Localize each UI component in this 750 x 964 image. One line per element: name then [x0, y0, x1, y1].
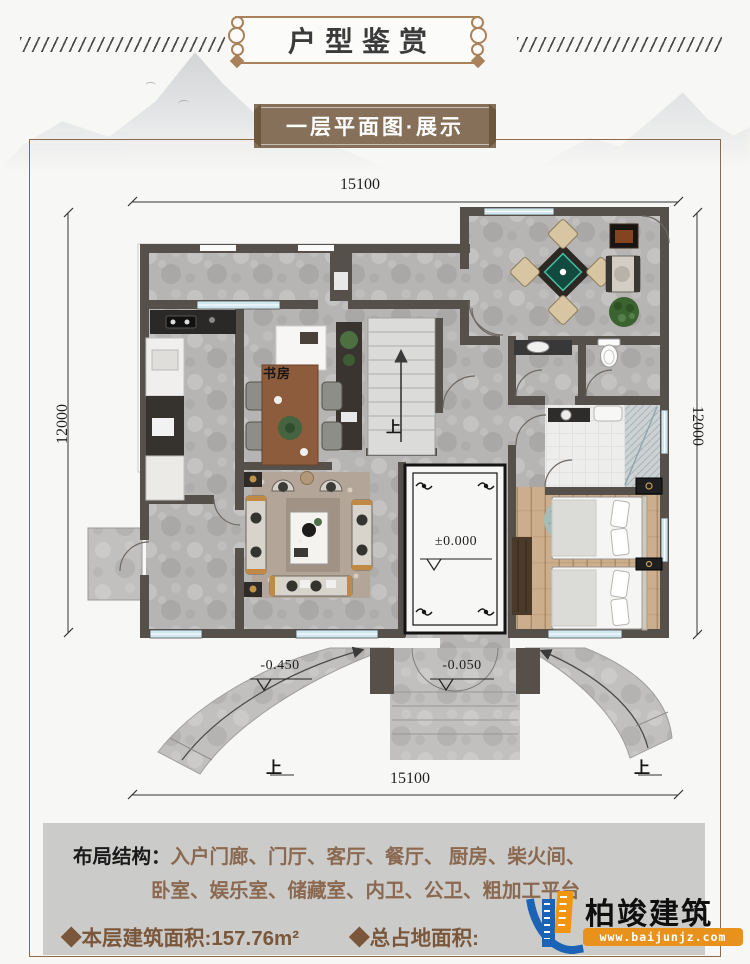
- logo-name: 柏竣建筑: [585, 889, 713, 933]
- dimension-left-label: 12000: [54, 392, 72, 456]
- logo-website: www.baijunjz.com: [583, 928, 743, 946]
- layout-line2: 卧室、娱乐室、储藏室、内卫、公卫、粗加工平台: [151, 880, 580, 902]
- page-title: 户型鉴赏: [279, 20, 436, 60]
- level-label-left-ramp: -0.450: [248, 658, 312, 674]
- curved-stair-right: [525, 648, 672, 758]
- up-label-left-ramp: 上: [266, 754, 282, 778]
- company-logo: 柏竣建筑 www.baijunjz.com: [528, 886, 746, 962]
- layout-line1: 入户门廊、门厅、客厅、餐厅、 厨房、柴火间、: [171, 846, 586, 868]
- total-area-text: ◆总占地面积:: [349, 921, 479, 951]
- subtitle-label: 一层平面图·展示: [286, 111, 464, 141]
- dimension-top-label: 15100: [322, 176, 398, 194]
- up-label-stairs: 上: [386, 416, 401, 437]
- slash-decor-right: [517, 37, 722, 52]
- floor-plan-drawing: [0, 160, 750, 810]
- level-label-entry: ±0.000: [420, 534, 492, 550]
- slash-decor-left: [20, 37, 225, 52]
- level-label-porch: -0.050: [428, 658, 496, 674]
- floor-area-text: ◆本层建筑面积:157.76m²: [61, 921, 299, 951]
- poster-page: 户型鉴赏 一层平面图·展示: [0, 0, 750, 964]
- floor-plan: 15100 15100 12000 12000 书房 ±0.000 -0.450…: [0, 160, 750, 810]
- ornament-scroll-icon: [467, 14, 491, 66]
- layout-label: 布局结构：: [73, 846, 171, 868]
- logo-building-icon: [528, 886, 580, 958]
- subtitle-banner: 一层平面图·展示: [254, 104, 496, 148]
- ornament-scroll-icon: [224, 14, 248, 66]
- title-frame: 户型鉴赏: [235, 16, 480, 64]
- dimension-bottom-label: 15100: [372, 770, 448, 788]
- room-label-study: 书房: [263, 363, 291, 382]
- dimension-right-label: 12000: [688, 394, 706, 458]
- bird-icon: [145, 82, 156, 89]
- staircase: [368, 318, 435, 455]
- up-label-right-ramp: 上: [634, 754, 650, 778]
- living-room-furniture: [244, 472, 372, 599]
